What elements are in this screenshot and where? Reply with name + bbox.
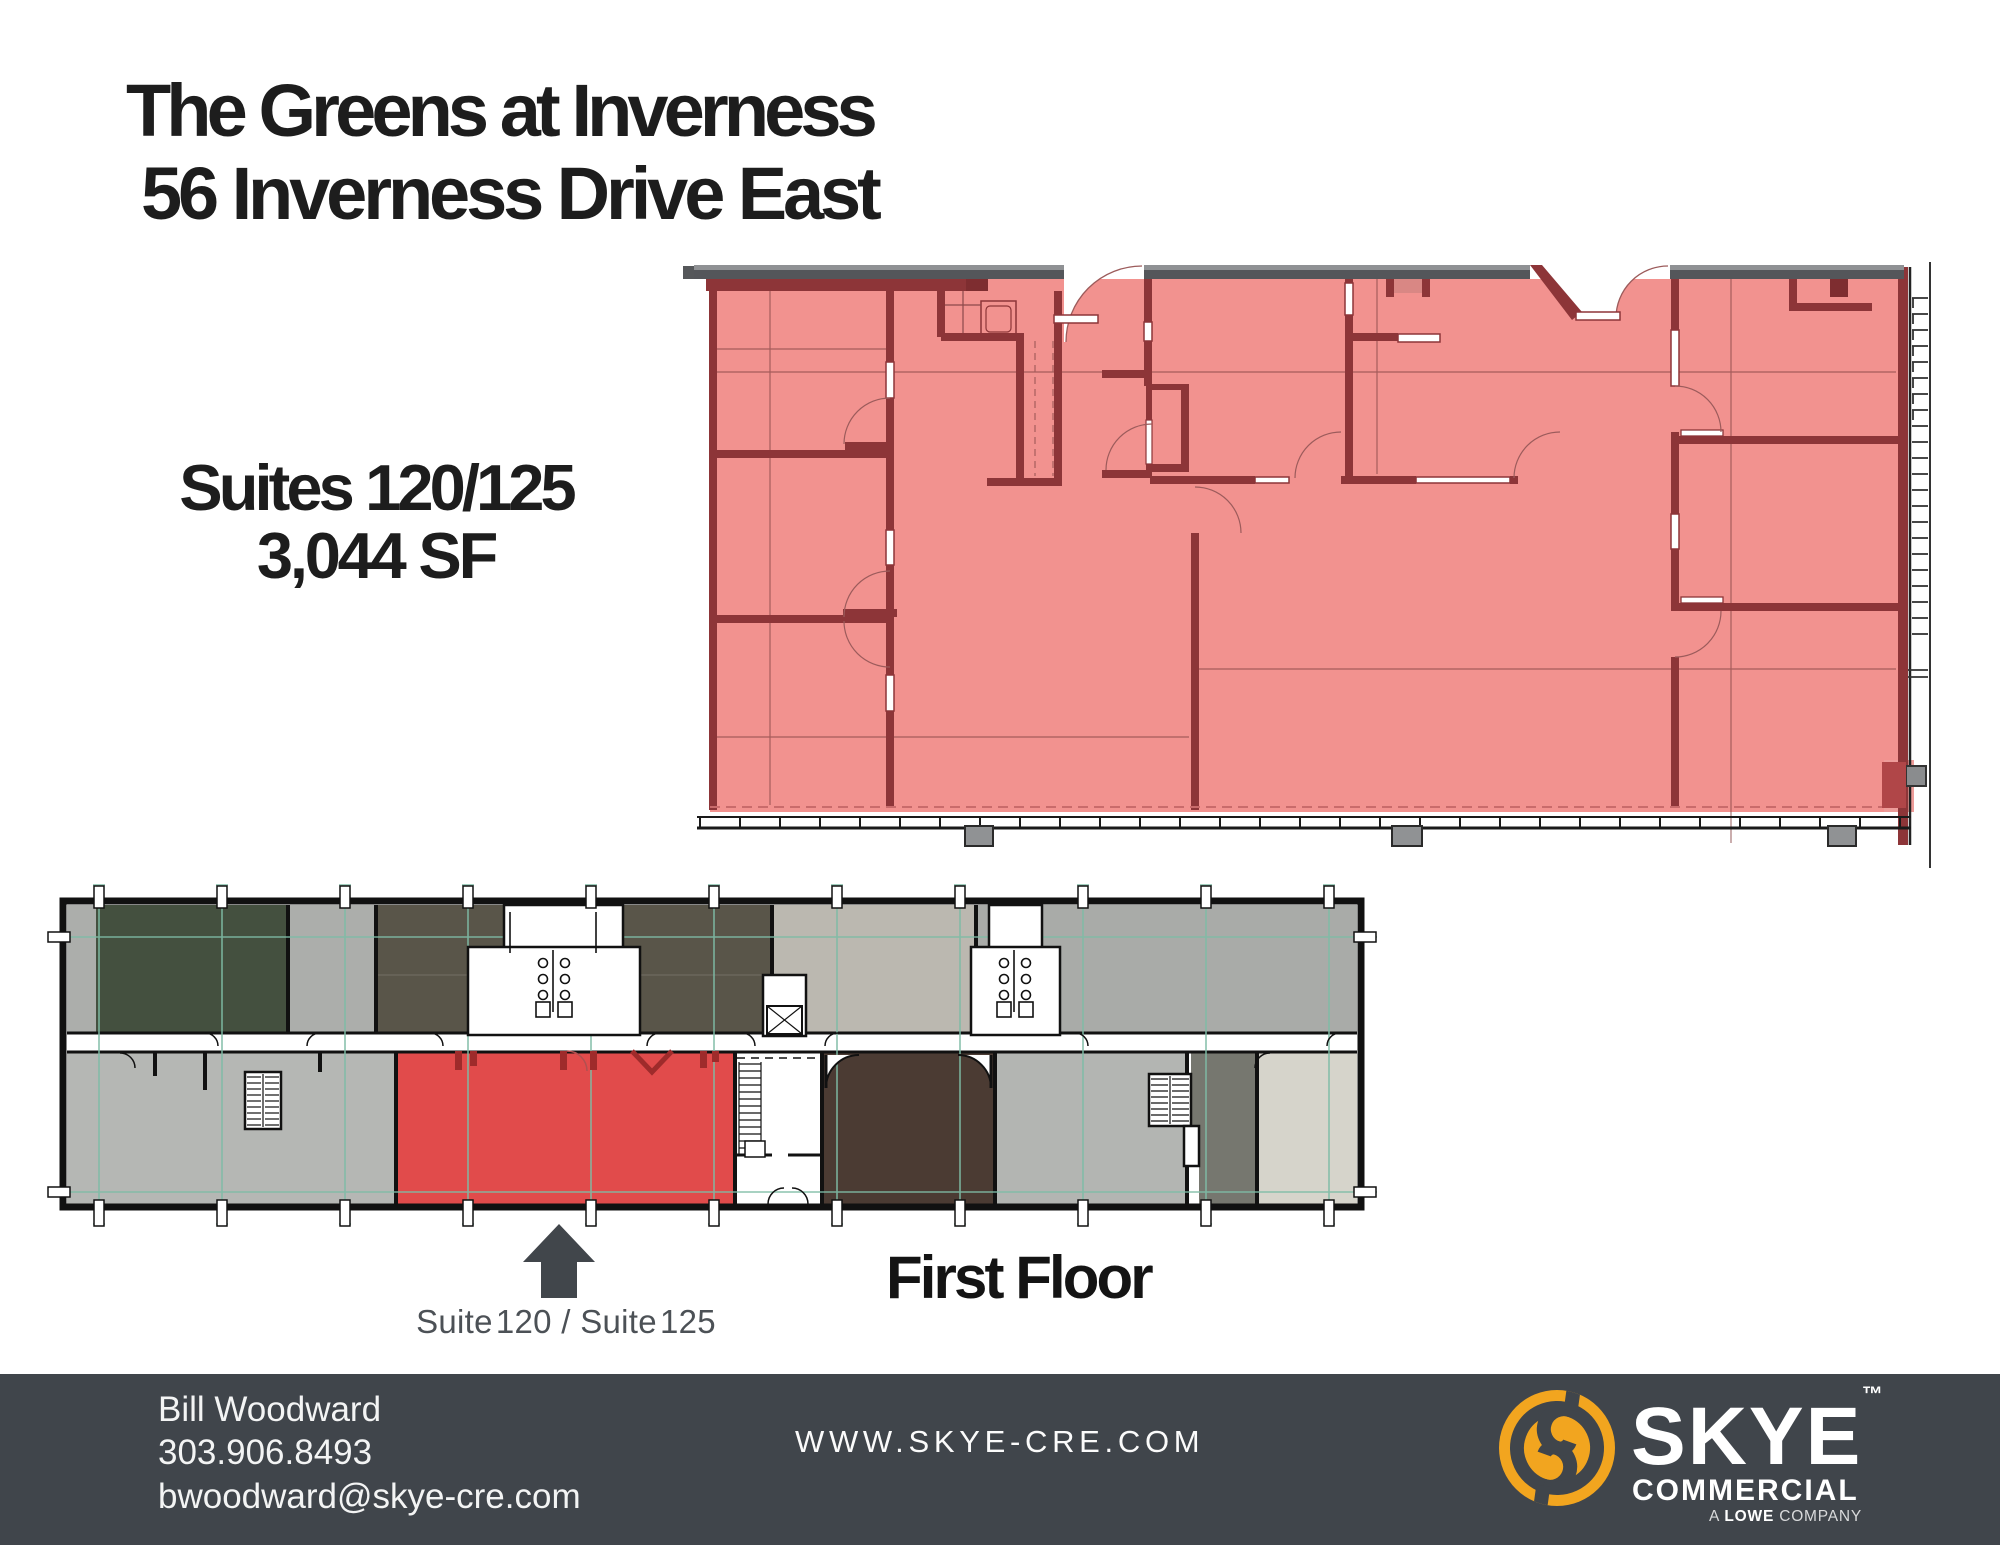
svg-text:™: ™ [1862, 1383, 1883, 1406]
svg-text:SKYE: SKYE [1631, 1391, 1862, 1482]
svg-text:COMMERCIAL: COMMERCIAL [1632, 1474, 1859, 1507]
svg-text:A LOWE COMPANY: A LOWE COMPANY [1709, 1508, 1862, 1525]
